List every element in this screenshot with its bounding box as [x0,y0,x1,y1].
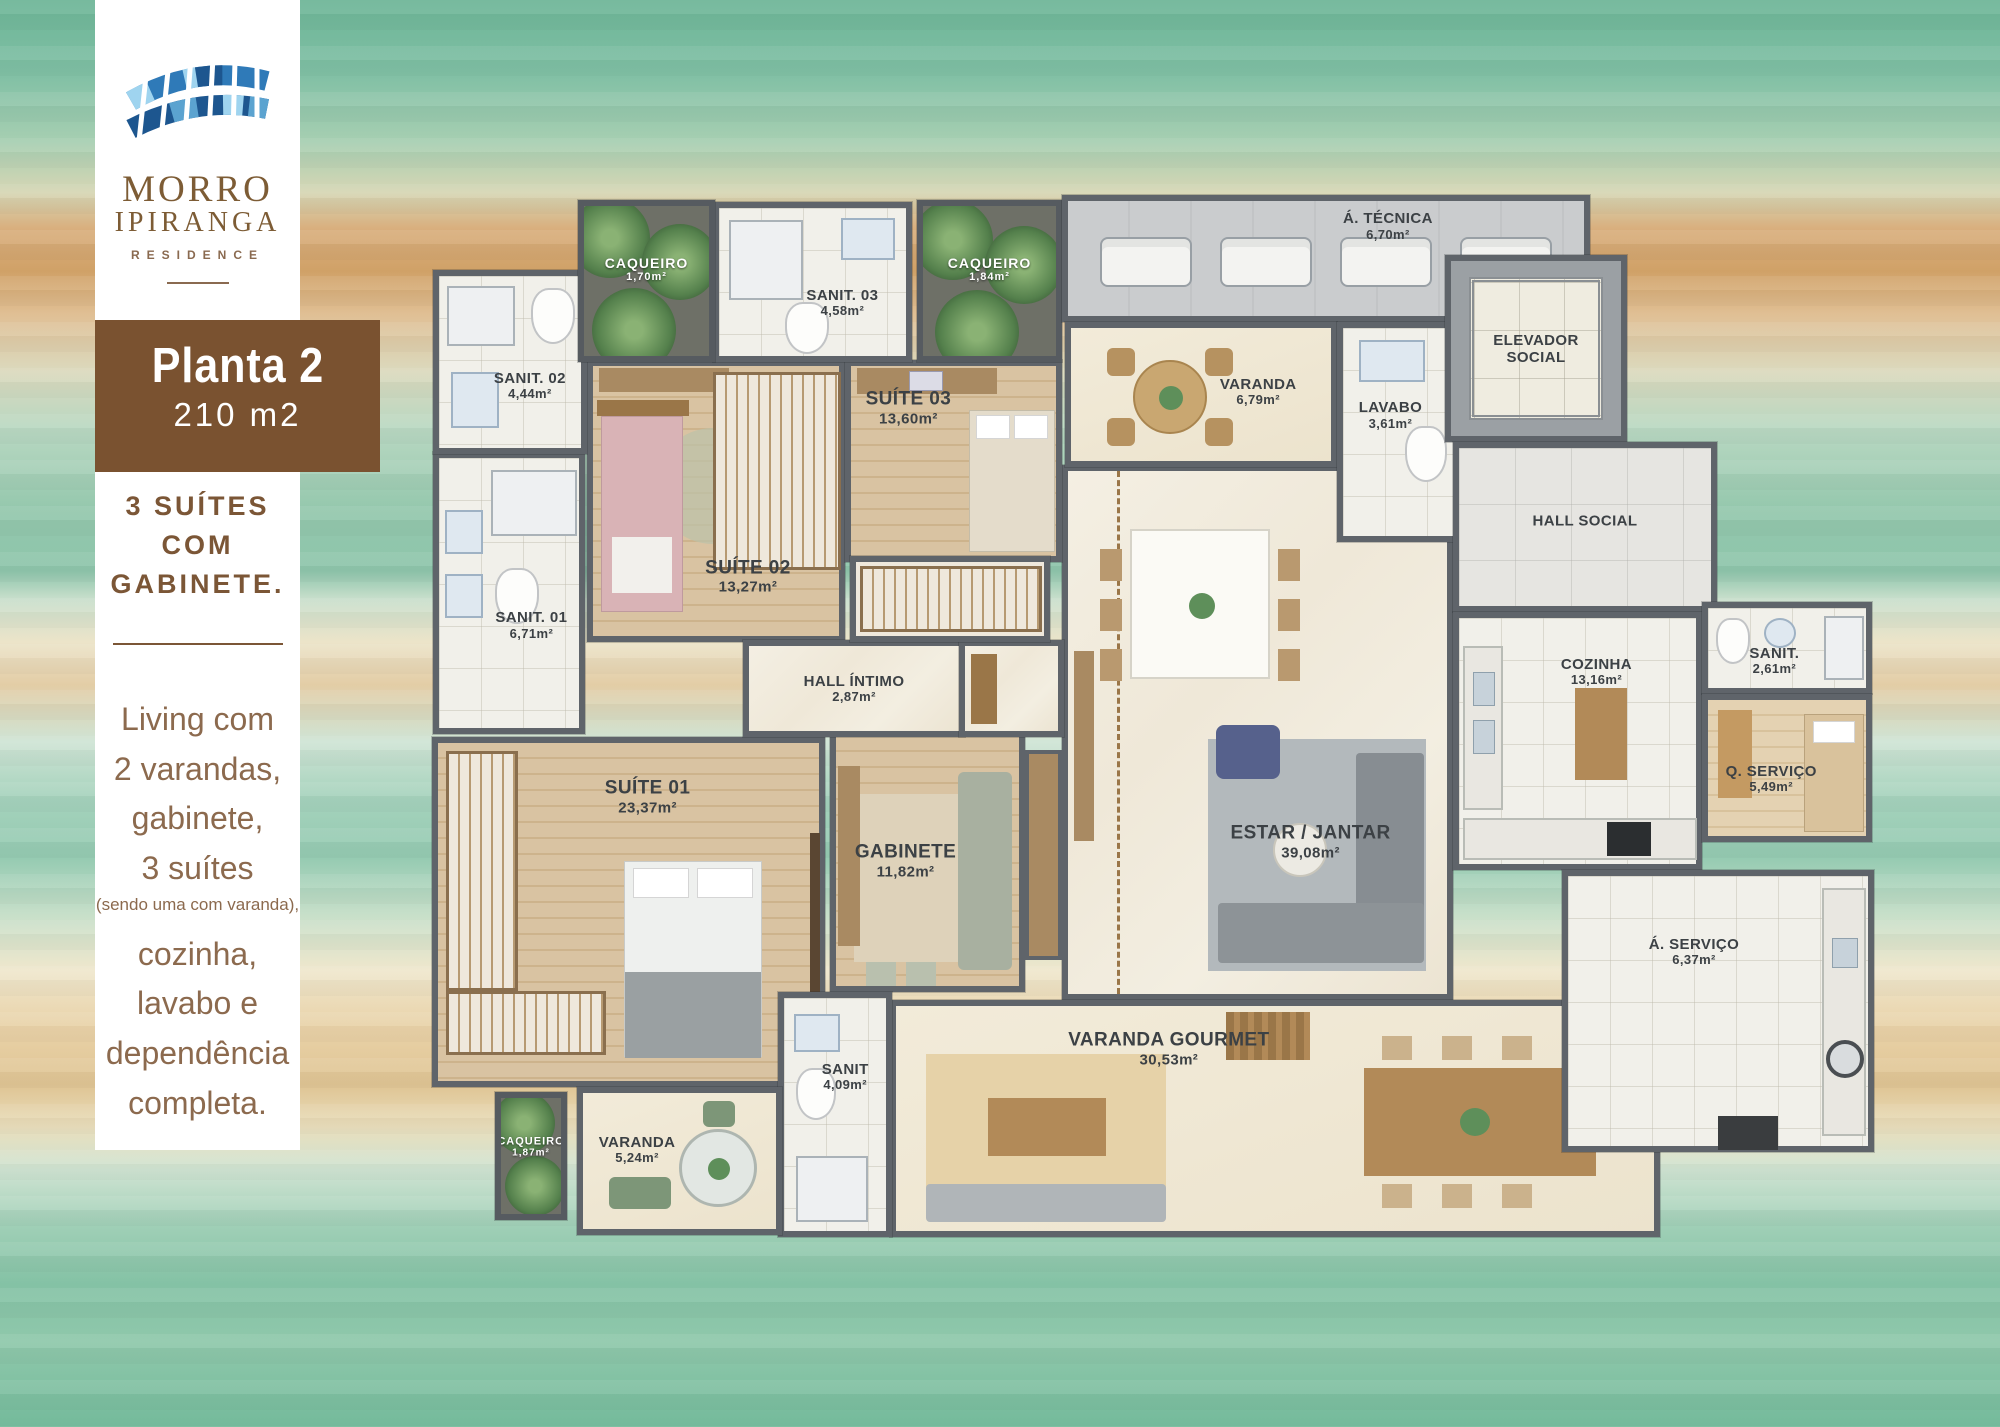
chair [1442,1036,1472,1060]
room-label: SUÍTE 03 13,60m² [866,388,952,427]
room-label: ELEVADOR SOCIAL [1481,331,1591,366]
bed-double [624,861,762,1057]
washbasin [794,1014,840,1052]
room-label: SANIT. 03 4,58m² [806,287,878,319]
brand-name-line2: IPIRANGA [95,207,300,239]
dark-mat [1718,1116,1778,1150]
chair [1382,1036,1412,1060]
room-label: CAQUEIRO 1,84m² [948,255,1031,283]
shower [796,1156,868,1222]
plan-description-2: cozinha, lavabo e dependência completa. [85,930,310,1128]
pillow [1813,721,1855,743]
plan-title: Planta 2 [151,338,323,394]
room-area-servico: Á. SERVIÇO 6,37m² [1562,870,1874,1152]
chair [1107,418,1135,446]
planter-caqueiro: CAQUEIRO 1,84m² [917,200,1062,362]
ac-condenser [1220,237,1312,287]
room-gabinete: GABINETE 11,82m² [830,730,1025,992]
dining-table [1130,529,1270,679]
shoe-cabinet [971,654,997,724]
sink-counter [1463,646,1503,810]
blanket [625,972,761,1058]
lounge-chair [609,1177,671,1209]
room-sanit-01: SANIT. 01 6,71m² [433,452,585,734]
toilet [1405,426,1447,482]
pillow [697,868,753,898]
room-lavabo: LAVABO 3,61m² [1337,322,1462,542]
brand-wave-logo [117,55,277,160]
room-label: SUÍTE 01 23,37m² [605,778,691,817]
washbasin [1359,340,1425,382]
dining-chair [1100,549,1122,581]
wardrobe [446,751,518,991]
washbasin [841,218,895,260]
room-label: SANIT. 02 4,44m² [494,370,566,402]
room-label: VARANDA GOURMET 30,53m² [1068,1029,1269,1068]
desk [599,368,729,392]
room-varanda-suite01: VARANDA 5,24m² [577,1087,782,1235]
chair [1107,348,1135,376]
table-plant [1159,386,1183,410]
washbasin [445,574,483,618]
dining-chair [1278,649,1300,681]
room-label: LAVABO 3,61m² [1359,399,1423,431]
sink [1473,720,1495,754]
room-label: SANIT. 01 6,71m² [495,609,567,641]
room-label: Á. SERVIÇO 6,37m² [1649,936,1739,968]
toilet [1716,618,1750,664]
palm-plant [935,290,1019,362]
closet [850,556,1050,642]
brand-name-line1: MORRO [95,168,300,211]
shower [729,220,803,300]
plan-description-note: (sendo uma com varanda), [85,895,310,915]
shower [491,470,577,536]
pillow [976,415,1010,439]
sofa-chaise [1218,903,1424,963]
room-elevador-social: ELEVADOR SOCIAL [1445,255,1627,442]
sideboard [1025,750,1062,960]
room-hall-intimo: HALL ÍNTIMO 2,87m² [743,640,965,737]
room-quarto-servico: Q. SERVIÇO 5,49m² [1702,694,1872,842]
gourmet-coffee-table [988,1098,1106,1156]
shower [1824,616,1864,680]
room-suite-01: SUÍTE 01 23,37m² [432,737,825,1087]
chair [1442,1184,1472,1208]
dining-chair [1278,599,1300,631]
room-estar-jantar: ESTAR / JANTAR 39,08m² [1062,465,1453,1000]
room-label: HALL ÍNTIMO 2,87m² [804,672,905,704]
palm-plant [592,288,676,362]
logo-divider [167,282,229,284]
chair [1502,1184,1532,1208]
blue-armchair [1216,725,1280,779]
room-label: SANIT. 2,61m² [1749,645,1799,677]
pouf [906,962,936,986]
laundry-counter [1822,888,1866,1136]
room-label: GABINETE 11,82m² [855,841,956,880]
ac-condenser [1100,237,1192,287]
room-suite-03: SUÍTE 03 13,60m² [845,360,1062,562]
room-label: VARANDA 5,24m² [599,1134,676,1166]
palm-plant [505,1156,565,1216]
sheet [612,537,672,593]
room-varanda-gourmet: VARANDA GOURMET 30,53m² [890,1000,1660,1237]
gourmet-sofa [926,1184,1166,1222]
room-sanit-02: SANIT. 02 4,44m² [433,270,587,454]
room-sanit-03: SANIT. 03 4,58m² [713,202,912,362]
table-plant [708,1158,730,1180]
round-table [679,1129,757,1207]
chair [1205,418,1233,446]
dining-chair [1100,649,1122,681]
room-label: COZINHA 13,16m² [1561,656,1632,688]
shower [447,286,515,346]
room-label: SUÍTE 02 13,27m² [705,557,791,596]
bed-headboard [597,400,689,416]
room-label: ESTAR / JANTAR 39,08m² [1231,823,1391,862]
room-varanda-social: VARANDA 6,79m² [1065,322,1337,467]
lounge-chair [703,1101,735,1127]
room-suite-02: SUÍTE 02 13,27m² [587,360,845,642]
room-label: Q. SERVIÇO 5,49m² [1726,763,1817,795]
washbasin [1764,618,1796,648]
room-sanit-suite01: SANIT 4,09m² [778,992,892,1237]
room-label: CAQUEIRO 1,70m² [605,255,688,283]
bed-double [969,410,1055,552]
table-plant [1460,1108,1490,1136]
info-panel: MORRO IPIRANGA RESIDENCE Planta 2 210 m2… [95,0,300,1150]
room-cozinha: COZINHA 13,16m² [1453,612,1702,870]
chair [1382,1184,1412,1208]
room-label: VARANDA 6,79m² [1220,376,1297,408]
laundry-sink [1832,938,1858,968]
chair [1502,1036,1532,1060]
washbasin [451,372,499,428]
wardrobe [446,991,606,1055]
sink [1473,672,1495,706]
room-sanit-servico: SANIT. 2,61m² [1702,602,1872,694]
round-table [1133,360,1207,434]
plan-description: Living com 2 varandas, gabinete, 3 suíte… [85,695,310,1128]
wardrobe [713,372,841,570]
bed-single [601,416,683,612]
ac-condenser [1340,237,1432,287]
kitchen-counter [1463,818,1697,860]
plan-total-area: 210 m2 [95,396,380,434]
pillow [633,868,689,898]
kitchen-island [1575,688,1627,780]
room-label: CAQUEIRO 1,87m² [497,1135,564,1158]
washbasin [445,510,483,554]
floorplan: ESTAR / JANTAR 39,08m² VARANDA GOURMET 3… [430,150,1880,1237]
room-label: Á. TÉCNICA 6,70m² [1343,210,1433,242]
room-hall-social: HALL SOCIAL [1453,442,1717,612]
table-plant [1189,593,1215,619]
gabinete-sofa [958,772,1012,970]
pillow [1014,415,1048,439]
planter-caqueiro: CAQUEIRO 1,70m² [578,200,715,362]
tv-console [1074,651,1094,841]
plan-headline: 3 SUÍTES COM GABINETE. [95,487,300,604]
passage [959,640,1064,737]
plan-badge: Planta 2 210 m2 [95,320,380,472]
pouf [866,962,896,986]
chair [1205,348,1233,376]
dining-chair [1278,549,1300,581]
washing-machine [1826,1040,1864,1078]
brand-subtitle: RESIDENCE [95,248,300,262]
toilet [531,288,575,344]
tv-panel [810,833,820,1003]
cooktop [1607,822,1651,856]
room-label: HALL SOCIAL [1533,512,1638,529]
section-divider [113,643,283,645]
wardrobe [860,566,1042,632]
planter-caqueiro: CAQUEIRO 1,87m² [495,1092,567,1220]
room-label: SANIT 4,09m² [822,1061,869,1093]
dining-chair [1100,599,1122,631]
